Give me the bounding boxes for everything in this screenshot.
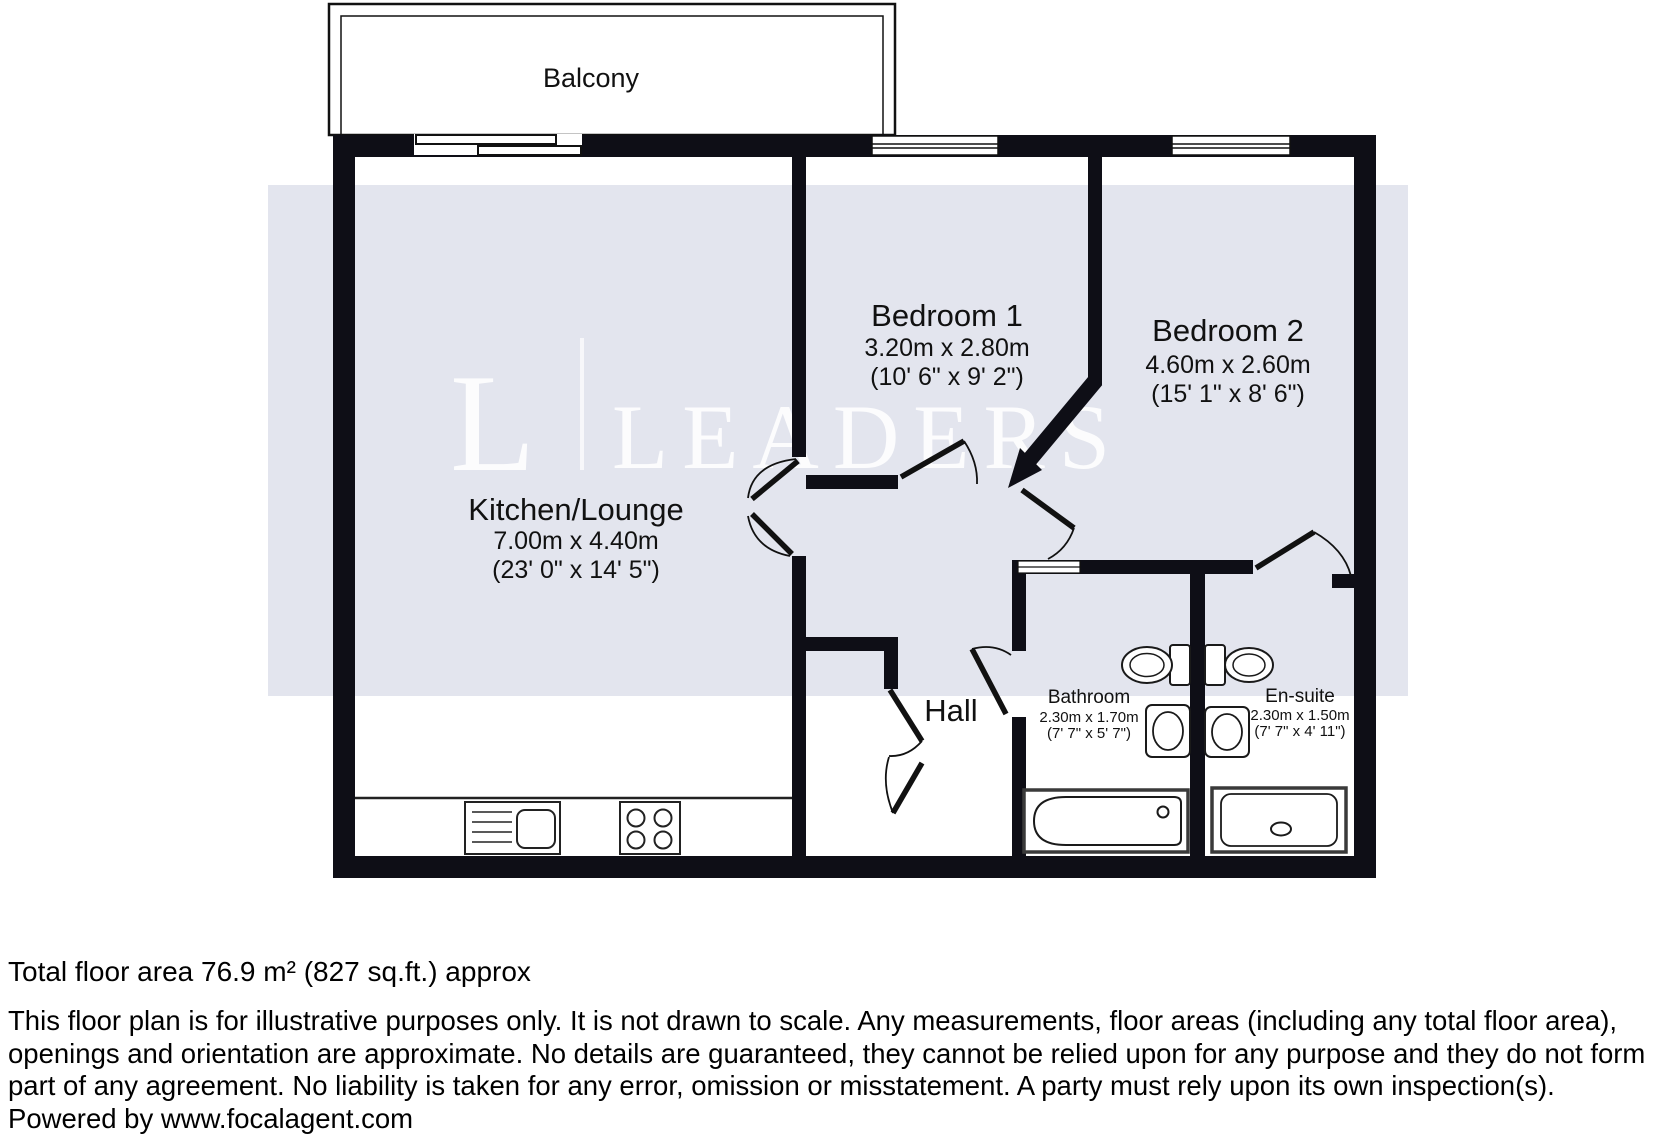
total-floor-area: Total floor area 76.9 m² (827 sq.ft.) ap…	[8, 956, 1663, 988]
bathroom-basin	[1146, 705, 1190, 757]
hall-label: Hall	[924, 693, 977, 728]
bedroom1-name: Bedroom 1	[871, 298, 1023, 333]
footer: Total floor area 76.9 m² (827 sq.ft.) ap…	[8, 956, 1663, 1135]
watermark-initial: L	[450, 346, 536, 501]
kitchen-lounge-metric: 7.00m x 4.40m	[493, 527, 658, 555]
bedroom2-label: Bedroom 2 4.60m x 2.60m (15' 1" x 8' 6")	[1145, 313, 1310, 408]
wall-kitchen-divider-lower	[792, 556, 806, 856]
wall-ensuite-top	[1205, 560, 1253, 574]
ensuite-label: En-suite 2.30m x 1.50m (7' 7" x 4' 11")	[1250, 686, 1349, 740]
disclaimer-text: This floor plan is for illustrative purp…	[8, 1005, 1663, 1103]
bathroom-toilet	[1122, 645, 1190, 685]
bathroom-metric: 2.30m x 1.70m	[1039, 709, 1138, 726]
bedroom1-imperial: (10' 6" x 9' 2")	[870, 363, 1024, 391]
bedroom1-label: Bedroom 1 3.20m x 2.80m (10' 6" x 9' 2")	[864, 298, 1029, 391]
ensuite-imperial: (7' 7" x 4' 11")	[1254, 723, 1345, 740]
kitchen-fixtures	[355, 798, 792, 854]
kitchen-lounge-imperial: (23' 0" x 14' 5")	[492, 556, 660, 584]
ensuite-basin	[1205, 707, 1249, 757]
wall-exterior-bottom	[333, 856, 1376, 878]
patio-door-window	[414, 134, 582, 155]
hall-doors	[886, 690, 922, 813]
bathroom-label: Bathroom 2.30m x 1.70m (7' 7" x 5' 7")	[1039, 687, 1138, 742]
wall-hall-stub	[884, 651, 898, 689]
kitchen-lounge-name: Kitchen/Lounge	[468, 492, 683, 527]
ensuite-metric: 2.30m x 1.50m	[1250, 707, 1349, 724]
bathroom-imperial: (7' 7" x 5' 7")	[1047, 725, 1131, 742]
wall-bathroom-ensuite-divider	[1190, 560, 1205, 856]
kitchen-lounge-label: Kitchen/Lounge 7.00m x 4.40m (23' 0" x 1…	[468, 492, 683, 584]
wall-ensuite-stub	[1332, 574, 1354, 588]
bedroom1-metric: 3.20m x 2.80m	[864, 334, 1029, 362]
wall-kitchen-divider-upper	[792, 157, 806, 457]
wall-exterior-left	[333, 135, 355, 878]
wall-bathroom-left-upper	[1012, 560, 1026, 651]
bedroom2-window	[1172, 136, 1290, 155]
bedroom1-window	[872, 136, 998, 155]
kitchen-sink	[465, 802, 560, 854]
shower-tray	[1212, 788, 1346, 852]
ensuite-name: En-suite	[1265, 686, 1335, 707]
powered-by-text: Powered by www.focalagent.com	[8, 1103, 1663, 1136]
balcony-label: Balcony	[543, 63, 640, 93]
bedroom2-metric: 4.60m x 2.60m	[1145, 351, 1310, 379]
bathroom-internal-window	[1018, 561, 1080, 573]
watermark-divider	[580, 338, 584, 470]
wall-hall-ledge	[806, 637, 898, 651]
bedroom2-imperial: (15' 1" x 8' 6")	[1151, 380, 1305, 408]
ensuite-toilet	[1205, 645, 1273, 685]
bathroom-name: Bathroom	[1048, 687, 1130, 708]
bathtub	[1024, 790, 1188, 852]
wall-exterior-right	[1354, 135, 1376, 878]
kitchen-hob	[620, 802, 680, 854]
bedroom2-name: Bedroom 2	[1152, 313, 1304, 348]
wall-bedroom1-bottom	[806, 475, 898, 489]
wall-bedroom-divider	[1088, 157, 1102, 385]
